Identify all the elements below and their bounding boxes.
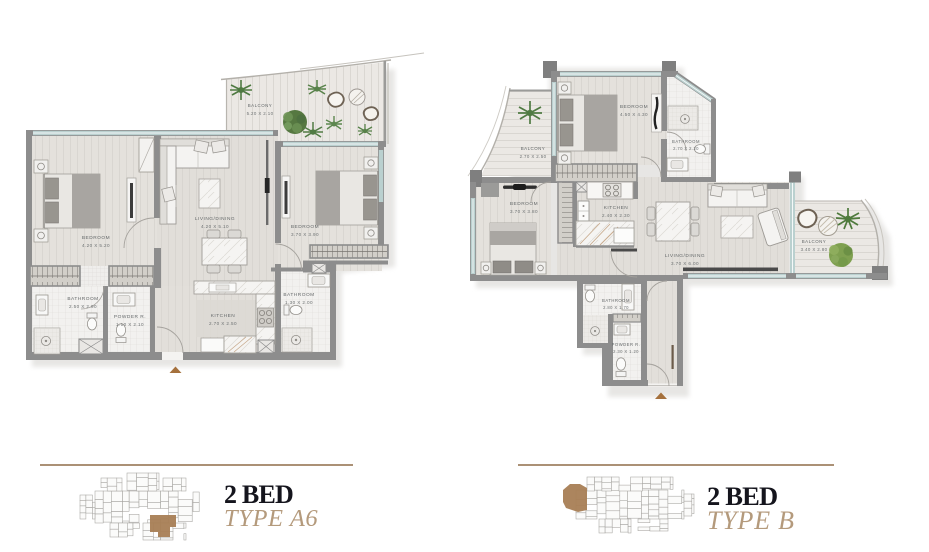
svg-text:4.20 X 5.10: 4.20 X 5.10 — [201, 224, 229, 229]
svg-text:BATHROOM: BATHROOM — [602, 298, 630, 303]
svg-text:2.70 X 2.20: 2.70 X 2.20 — [673, 146, 699, 151]
svg-text:BATHROOM: BATHROOM — [283, 292, 314, 298]
svg-text:5.20 X 2.10: 5.20 X 2.10 — [247, 111, 274, 116]
svg-text:1.30 X 2.00: 1.30 X 2.00 — [285, 300, 313, 305]
svg-text:2.80 X 1.70: 2.80 X 1.70 — [603, 305, 629, 310]
svg-text:BEDROOM: BEDROOM — [82, 235, 110, 241]
svg-text:3.70 X 3.90: 3.70 X 3.90 — [291, 232, 319, 237]
svg-text:BATHROOM: BATHROOM — [672, 139, 700, 144]
svg-text:4.50 X 4.30: 4.50 X 4.30 — [620, 112, 648, 117]
svg-text:2.70 X 2.50: 2.70 X 2.50 — [520, 154, 547, 159]
svg-text:BEDROOM: BEDROOM — [510, 201, 538, 207]
svg-text:1.10 X 2.10: 1.10 X 2.10 — [116, 322, 144, 327]
svg-text:2.40 X 2.30: 2.40 X 2.30 — [602, 213, 630, 218]
svg-text:LIVING/DINING: LIVING/DINING — [195, 216, 235, 222]
svg-text:POWDER R.: POWDER R. — [114, 314, 146, 320]
svg-text:2.50 X 2.90: 2.50 X 2.90 — [69, 304, 97, 309]
svg-text:TYPE A6: TYPE A6 — [224, 505, 318, 532]
svg-text:BATHROOM: BATHROOM — [67, 296, 98, 302]
svg-text:LIVING/DINING: LIVING/DINING — [665, 253, 705, 259]
svg-text:BEDROOM: BEDROOM — [291, 224, 319, 230]
svg-text:POWDER R.: POWDER R. — [612, 342, 641, 347]
svg-text:KITCHEN: KITCHEN — [604, 205, 629, 211]
svg-text:TYPE B: TYPE B — [707, 506, 795, 535]
svg-text:3.70 X 6.00: 3.70 X 6.00 — [671, 261, 699, 266]
svg-text:KITCHEN: KITCHEN — [211, 313, 236, 319]
svg-text:BALCONY: BALCONY — [521, 146, 545, 151]
svg-text:2.70 X 2.50: 2.70 X 2.50 — [209, 321, 237, 326]
svg-text:BALCONY: BALCONY — [802, 239, 826, 244]
svg-text:4.20 X 5.20: 4.20 X 5.20 — [82, 243, 110, 248]
svg-text:BALCONY: BALCONY — [248, 103, 272, 108]
svg-text:BEDROOM: BEDROOM — [620, 104, 648, 110]
svg-text:3.70 X 3.80: 3.70 X 3.80 — [510, 209, 538, 214]
svg-text:3.40 X 2.80: 3.40 X 2.80 — [801, 247, 828, 252]
svg-text:2.30 X 1.20: 2.30 X 1.20 — [613, 349, 639, 354]
